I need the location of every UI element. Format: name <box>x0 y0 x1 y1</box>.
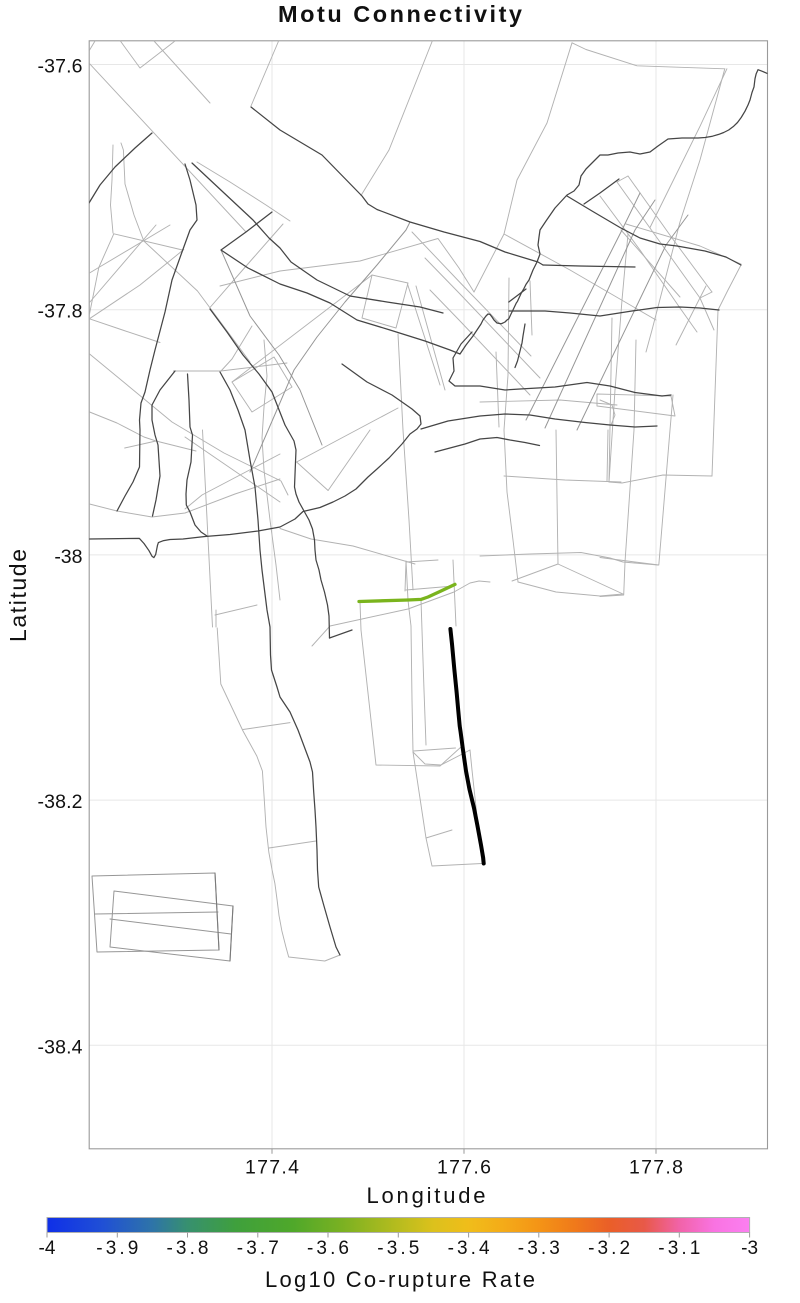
svg-text:177.6: 177.6 <box>437 1157 491 1179</box>
svg-text:-38: -38 <box>54 546 82 568</box>
svg-text:-38.2: -38.2 <box>38 791 83 813</box>
svg-text:-37.8: -37.8 <box>38 301 83 323</box>
svg-text:177.4: 177.4 <box>245 1157 299 1179</box>
svg-text:-38.4: -38.4 <box>38 1036 83 1058</box>
svg-text:-4: -4 <box>39 1238 56 1259</box>
svg-text:-37.6: -37.6 <box>38 56 83 78</box>
svg-text:Longitude: Longitude <box>367 1183 486 1208</box>
svg-text:-3: -3 <box>741 1238 758 1259</box>
svg-text:Log10 Co-rupture Rate: Log10 Co-rupture Rate <box>265 1267 535 1292</box>
svg-text:177.8: 177.8 <box>629 1157 683 1179</box>
